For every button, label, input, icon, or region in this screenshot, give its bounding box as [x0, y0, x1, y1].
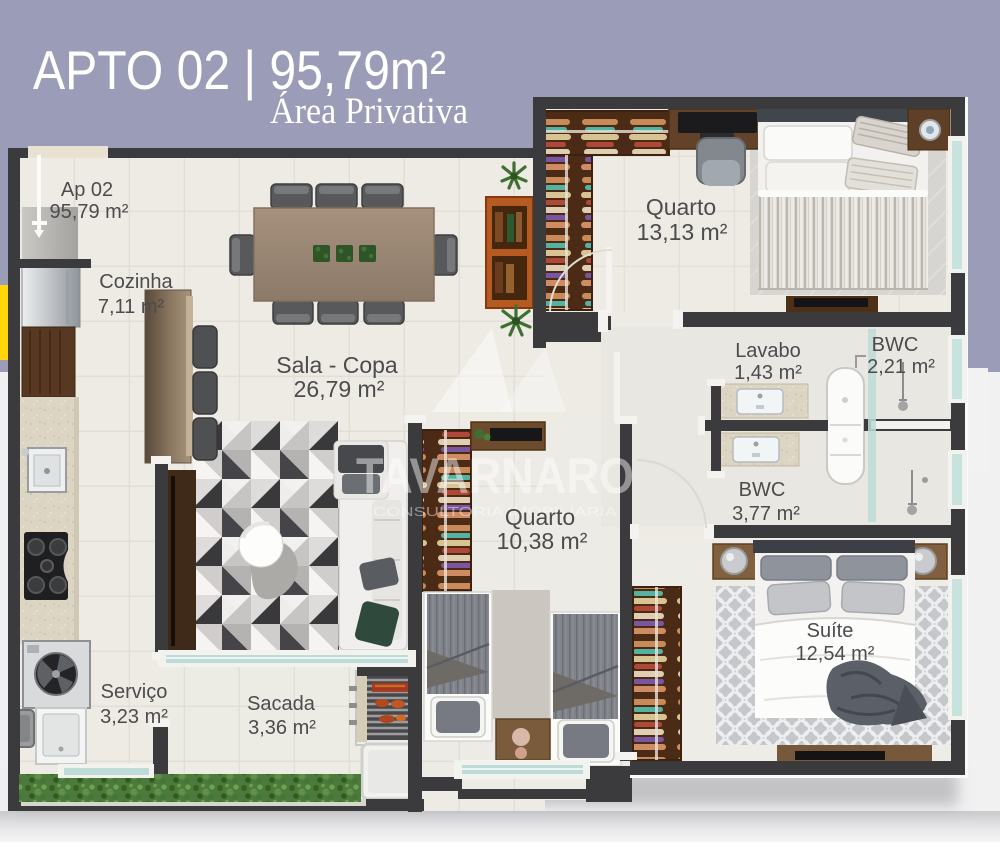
svg-text:2,21 m²: 2,21 m²: [867, 356, 935, 378]
svg-text:13,13 m²: 13,13 m²: [637, 219, 728, 245]
svg-text:26,79 m²: 26,79 m²: [294, 376, 385, 402]
svg-text:TAVARNARO: TAVARNARO: [356, 448, 634, 504]
svg-text:Área Privativa: Área Privativa: [270, 90, 468, 132]
svg-text:12,54 m²: 12,54 m²: [796, 643, 875, 665]
svg-text:Serviço: Serviço: [101, 681, 168, 703]
svg-text:Ap 02: Ap 02: [61, 179, 113, 201]
svg-text:3,23 m²: 3,23 m²: [100, 706, 168, 728]
svg-text:Sacada: Sacada: [247, 693, 316, 715]
svg-text:BWC: BWC: [872, 334, 919, 356]
svg-text:BWC: BWC: [739, 479, 786, 501]
svg-text:95,79 m²: 95,79 m²: [50, 201, 129, 223]
svg-text:Cozinha: Cozinha: [99, 271, 173, 293]
svg-text:3,36 m²: 3,36 m²: [248, 717, 316, 739]
svg-text:10,38 m²: 10,38 m²: [497, 528, 588, 554]
svg-text:Sala - Copa: Sala - Copa: [276, 352, 398, 378]
svg-text:1,43 m²: 1,43 m²: [734, 362, 802, 384]
svg-text:Suíte: Suíte: [807, 620, 854, 642]
svg-text:7,11 m²: 7,11 m²: [98, 296, 165, 318]
svg-text:3,77 m²: 3,77 m²: [732, 503, 800, 525]
svg-text:Quarto: Quarto: [646, 194, 716, 220]
svg-text:CONSULTORIA IMOBILIARIA: CONSULTORIA IMOBILIARIA: [373, 504, 617, 519]
svg-text:Quarto: Quarto: [505, 504, 575, 530]
svg-text:Lavabo: Lavabo: [735, 340, 801, 362]
